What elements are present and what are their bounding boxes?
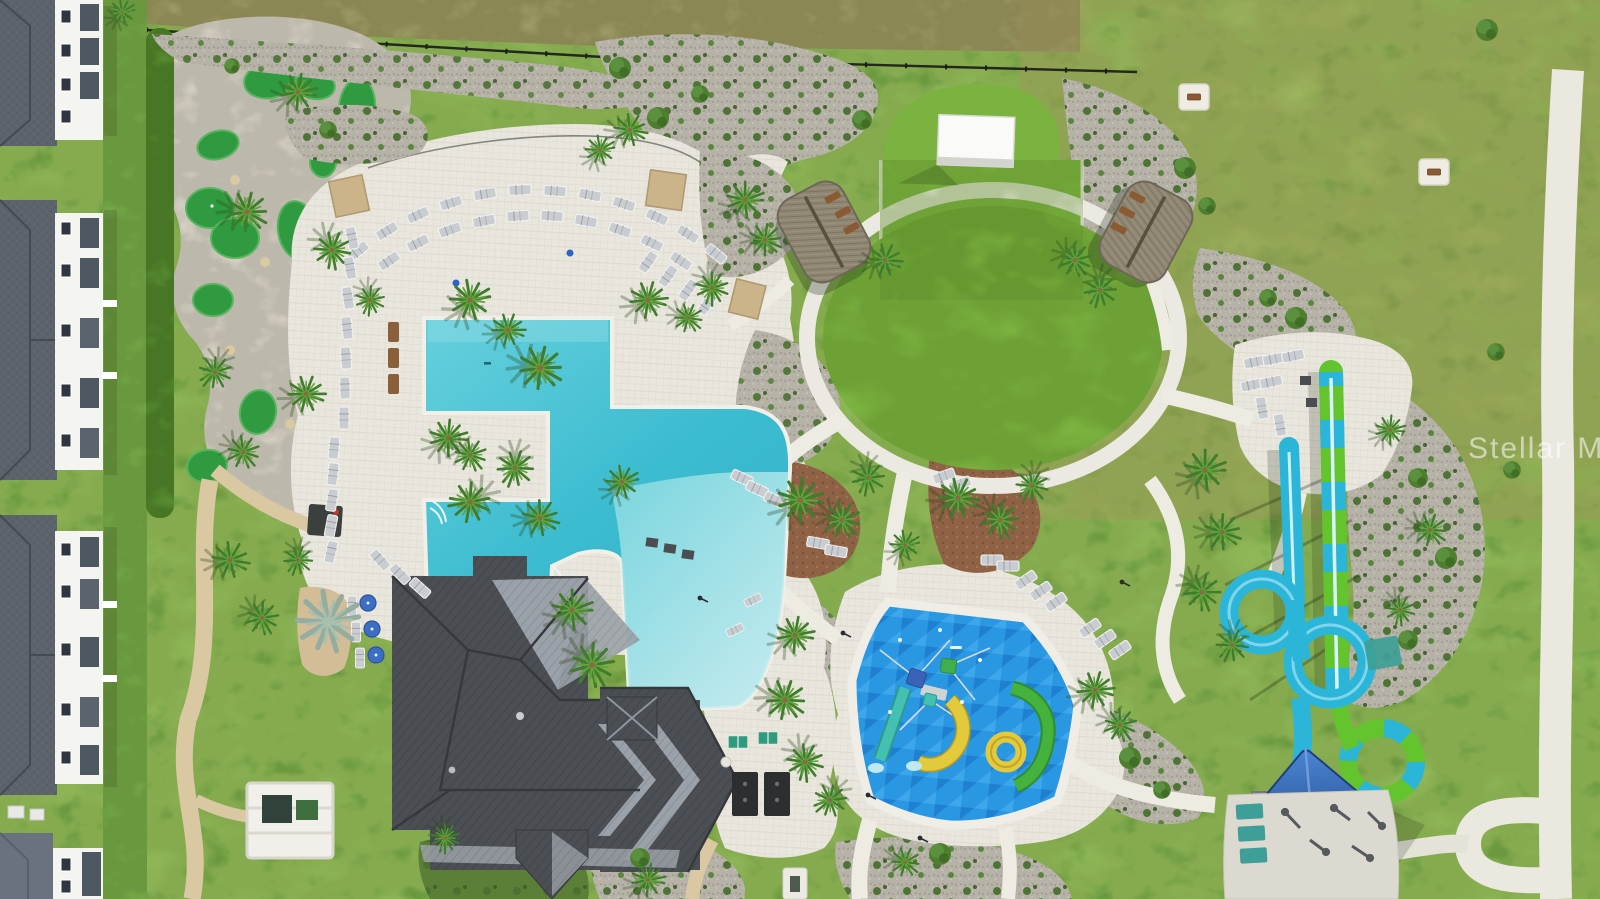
utility-box <box>790 876 800 892</box>
balcony-slab <box>102 601 117 608</box>
splash-pad <box>852 602 1078 825</box>
lounge-chair <box>328 437 340 460</box>
window <box>61 222 71 235</box>
deck-bed-shrubs <box>285 105 428 164</box>
aerial-photo: Stellar MLS <box>0 0 1600 899</box>
window <box>61 643 71 656</box>
mower <box>296 800 318 820</box>
tree <box>647 107 669 129</box>
patio-umbrella <box>360 595 376 611</box>
depth-marker <box>484 362 491 365</box>
apartment-roof <box>0 0 57 146</box>
building-shadow <box>104 527 117 787</box>
tree <box>1408 468 1428 488</box>
ping-pong-table <box>758 732 778 745</box>
window <box>61 751 71 764</box>
tree <box>1435 547 1457 569</box>
shade-cabana <box>329 175 370 217</box>
lounge-chair <box>340 377 351 399</box>
lounge-chair <box>327 462 340 485</box>
window <box>61 434 71 447</box>
screened-porch <box>82 852 101 896</box>
lounge-chair <box>541 210 564 222</box>
window <box>61 78 71 91</box>
tree <box>852 110 872 130</box>
window <box>61 264 71 277</box>
window <box>61 110 71 123</box>
planter-bench <box>388 374 399 394</box>
watermark-text: Stellar MLS <box>1468 432 1600 465</box>
screened-porch <box>80 318 99 348</box>
tree <box>609 57 631 79</box>
person <box>567 250 574 257</box>
tree <box>929 843 951 865</box>
lounge-chair <box>544 185 567 197</box>
tree <box>224 58 239 73</box>
screened-porch <box>80 537 99 567</box>
sidewalk <box>1555 70 1568 899</box>
apartment-roof <box>0 833 53 899</box>
golf-hole-flag <box>210 204 213 207</box>
cabana-roof <box>329 175 370 217</box>
splash-tower-canopy <box>940 658 957 674</box>
tree <box>1174 157 1196 179</box>
patio-table <box>681 549 694 560</box>
patio-umbrella <box>368 647 384 663</box>
fitness-mat <box>1236 803 1264 819</box>
tree <box>1476 19 1498 41</box>
planter-bench <box>388 348 399 368</box>
tree <box>1153 781 1171 799</box>
fitness-mat <box>1238 825 1266 841</box>
patio-umbrella <box>364 621 380 637</box>
shade-cabana <box>646 170 687 211</box>
screened-porch <box>80 579 99 609</box>
patio-table <box>663 543 676 554</box>
hedge-texture <box>146 28 174 518</box>
roof-bump <box>473 556 527 578</box>
lounge-chair <box>507 210 530 222</box>
patio-table <box>721 757 731 767</box>
patio-table <box>1300 376 1311 385</box>
balcony-slab <box>102 300 117 307</box>
screened-porch <box>80 72 99 99</box>
path <box>1005 828 1010 899</box>
window <box>61 880 71 893</box>
screened-porch <box>80 745 99 775</box>
cabana-roof <box>646 170 687 211</box>
screened-porch <box>80 428 99 458</box>
slide-runout-splash <box>906 761 922 771</box>
apartment-building <box>0 515 117 795</box>
slide-runout-splash <box>868 763 884 773</box>
window <box>61 585 71 598</box>
building-shadow <box>104 210 117 475</box>
fitness-mat <box>1240 847 1268 863</box>
bench-pad <box>1419 159 1449 185</box>
patio-table <box>1306 398 1317 407</box>
apartment-buildings <box>0 0 147 899</box>
pool-beach-entry <box>612 472 788 712</box>
tree <box>1398 630 1418 650</box>
window <box>61 858 71 871</box>
screened-porch <box>80 378 99 408</box>
screened-porch <box>80 4 99 31</box>
planter-bench <box>388 322 399 342</box>
tree <box>1198 197 1216 215</box>
tree <box>1119 747 1141 769</box>
window <box>61 703 71 716</box>
screened-porch <box>80 218 99 248</box>
tee-pad <box>230 175 240 185</box>
apartment-building <box>0 0 117 146</box>
screened-porch <box>80 697 99 727</box>
equipment <box>262 795 292 823</box>
fitness-zone <box>1224 790 1399 899</box>
window <box>61 10 71 23</box>
lounge-chair <box>340 347 352 370</box>
tree <box>691 85 709 103</box>
window <box>61 384 71 397</box>
ac-unit <box>8 806 24 818</box>
lounge-chair <box>997 561 1019 571</box>
window <box>61 44 71 57</box>
screened-porch <box>80 258 99 288</box>
splash-tower-canopy <box>923 693 937 707</box>
roof-vent <box>449 767 456 774</box>
apartment-building <box>0 200 117 480</box>
window <box>61 324 71 337</box>
tree <box>1259 289 1277 307</box>
balcony-slab <box>102 675 117 682</box>
window <box>61 543 71 556</box>
bench-pad <box>1179 84 1209 110</box>
lounge-chair <box>356 648 365 668</box>
putting-green <box>193 284 233 316</box>
screened-porch <box>80 637 99 667</box>
ac-unit <box>30 809 44 820</box>
lounge-chair <box>339 407 349 429</box>
tee-pad <box>260 257 270 267</box>
landing-mat <box>1364 635 1403 670</box>
screened-porch <box>80 38 99 65</box>
tree <box>1285 307 1307 329</box>
tree <box>1487 343 1505 361</box>
pad-marking <box>950 646 962 649</box>
tee-pad <box>285 419 295 429</box>
tree <box>319 121 337 139</box>
roof-vent <box>516 712 524 720</box>
lounge-chair <box>341 317 353 340</box>
balcony-slab <box>102 372 117 379</box>
lounge-chair <box>509 184 531 195</box>
patio-table <box>645 537 658 548</box>
ping-pong-table <box>728 736 748 749</box>
